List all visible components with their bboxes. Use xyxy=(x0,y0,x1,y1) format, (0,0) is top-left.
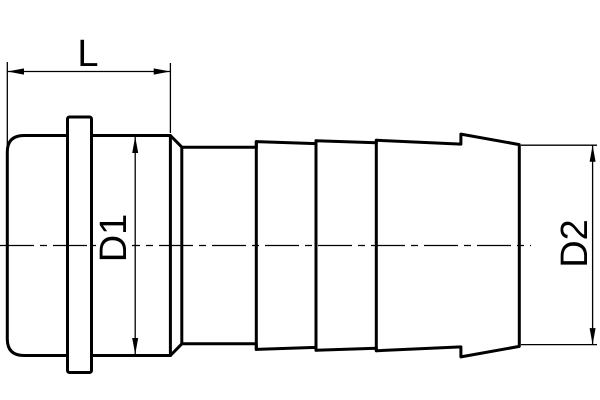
dim-l-arrow-left xyxy=(7,68,24,74)
flange xyxy=(68,117,92,373)
dim-d2-arrow-top xyxy=(590,145,596,162)
dim-l-label: L xyxy=(77,33,98,75)
dim-d2-arrow-bottom xyxy=(590,328,596,345)
dim-d2-label: D2 xyxy=(554,219,596,268)
dim-d1-label: D1 xyxy=(93,214,135,263)
drawing-canvas: L D1 D2 xyxy=(0,0,600,400)
technical-drawing: L D1 D2 xyxy=(0,0,600,400)
dim-l-arrow-right xyxy=(154,68,171,74)
